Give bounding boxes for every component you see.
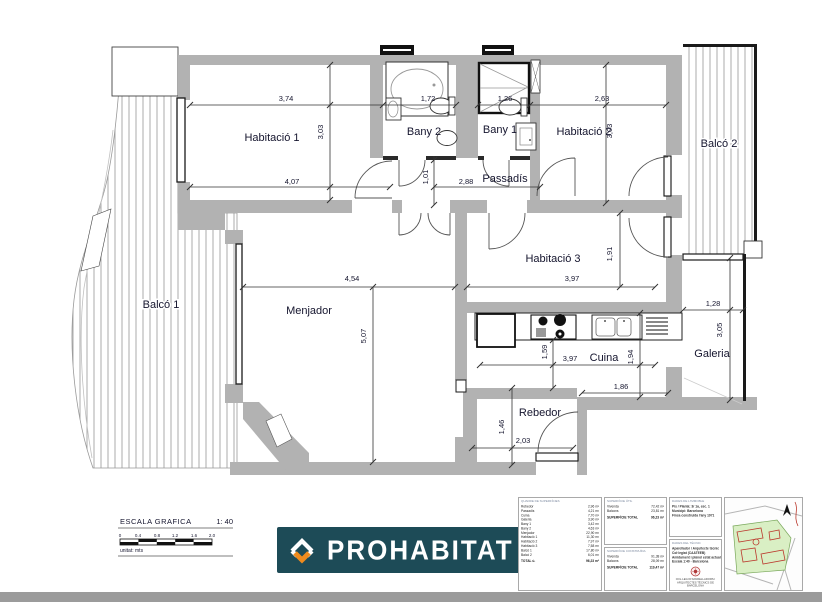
technician-data-box: DADES DEL TÈCNIC Aparellador / Arquitect… — [669, 539, 722, 591]
fridge-icon — [477, 314, 515, 347]
bottom-gray-bar — [0, 592, 822, 602]
technician-data-title: DADES DEL TÈCNIC — [672, 542, 719, 546]
svg-text:3,05: 3,05 — [715, 323, 724, 338]
walls — [178, 55, 757, 475]
property-data-title: DADES DE L'IMMOBLE — [672, 500, 719, 504]
scale-block: ESCALA GRAFICA 1: 40 0 0.4 0.8 1.2 1.6 2… — [118, 517, 233, 556]
areas-title: QUADRE DE SUPERFÍCIES — [521, 500, 599, 504]
list-item: Escala 1:40 · Barcelona — [672, 560, 719, 564]
svg-text:2,03: 2,03 — [516, 436, 531, 445]
technician-data-lines: Aparellador / Arquitecte tècnicCol·legia… — [672, 547, 719, 565]
scale-title: ESCALA GRAFICA — [120, 517, 192, 526]
floorplan-page: 3,74 4,07 3,03 1,72 1,26 2,63 3,03 1,01 … — [0, 0, 822, 602]
svg-text:3,74: 3,74 — [279, 94, 294, 103]
scale-unit: unitat: mts — [120, 548, 144, 554]
built-area-box: SUPERFÍCIE CONSTRUÏDA Vivenda91,38 m²Bal… — [604, 547, 667, 591]
svg-text:1.2: 1.2 — [172, 533, 179, 538]
room-label-bany-1: Bany 1 — [483, 124, 517, 136]
balcony-1-area — [72, 47, 237, 468]
svg-text:4,54: 4,54 — [345, 274, 360, 283]
svg-text:1,26: 1,26 — [498, 94, 513, 103]
list-item: Finca construïda l'any 1971 — [672, 514, 719, 518]
areas-total-row: TOTAL ú.96,23 m² — [521, 560, 599, 564]
svg-text:2,63: 2,63 — [595, 94, 610, 103]
scale-tick-labels: 0 0.4 0.8 1.2 1.6 2.0 — [119, 533, 216, 538]
room-label-rebedor: Rebedor — [519, 407, 562, 419]
parcel-polygon — [733, 520, 791, 574]
useful-area-title: SUPERFÍCIE ÚTIL — [607, 500, 664, 504]
table-row: Balcons23,81 m² — [607, 509, 664, 513]
svg-text:1,01: 1,01 — [421, 170, 430, 185]
table-row: Balcons28,09 m² — [607, 559, 664, 563]
useful-area-rows: Vivenda72,42 m²Balcons23,81 m² — [607, 505, 664, 514]
room-label-cuina: Cuina — [590, 352, 620, 364]
areas-rows: Rebedor2,96 m²Passadís4,21 m²Cuina7,70 m… — [521, 505, 599, 558]
college-stamp-icon — [690, 566, 701, 577]
property-data-box: DADES DE L'IMMOBLE Pis / Planta: 3r 1a, … — [669, 497, 722, 537]
svg-text:4,07: 4,07 — [285, 177, 300, 186]
svg-text:1,46: 1,46 — [497, 420, 506, 435]
stamp-caption: COL·LEGI D'APARELLADORS I ARQUITECTES TÈ… — [672, 578, 719, 588]
svg-text:2.0: 2.0 — [209, 533, 216, 538]
room-label-menjador: Menjador — [286, 305, 332, 317]
site-plan-map — [724, 497, 803, 591]
svg-text:1,91: 1,91 — [605, 247, 614, 262]
svg-text:1,86: 1,86 — [614, 382, 629, 391]
room-label-habitacio-1: Habitació 1 — [244, 132, 299, 144]
svg-text:0: 0 — [119, 533, 122, 538]
kitchen-counter — [475, 313, 682, 347]
svg-text:1,59: 1,59 — [540, 345, 549, 360]
room-label-galeria: Galeria — [694, 348, 730, 360]
svg-text:3,97: 3,97 — [565, 274, 580, 283]
table-row: Balcó 26,01 m² — [521, 553, 599, 557]
title-block-panel: QUADRE DE SUPERFÍCIES Rebedor2,96 m²Pass… — [518, 497, 803, 591]
areas-table-box: QUADRE DE SUPERFÍCIES Rebedor2,96 m²Pass… — [518, 497, 602, 591]
svg-text:0.4: 0.4 — [135, 533, 142, 538]
room-label-balco-2: Balcó 2 — [701, 138, 738, 150]
svg-text:3,03: 3,03 — [316, 125, 325, 140]
svg-text:1.6: 1.6 — [191, 533, 198, 538]
balcony-2-area — [683, 44, 762, 258]
room-label-balco-1: Balcó 1 — [143, 299, 180, 311]
useful-area-total: SUPERFÍCIE TOTAL96,23 m² — [607, 516, 664, 520]
scale-ratio: 1: 40 — [216, 517, 233, 526]
built-area-total: SUPERFÍCIE TOTAL119,47 m² — [607, 566, 664, 570]
room-label-habitacio-3: Habitació 3 — [525, 253, 580, 265]
site-map-drawing — [725, 498, 802, 590]
stove-icon — [531, 314, 576, 339]
room-label-passadis: Passadís — [482, 173, 528, 185]
prohabitat-logo-icon — [286, 534, 318, 566]
svg-text:0.8: 0.8 — [154, 533, 161, 538]
prohabitat-banner: PROHABITAT — [277, 527, 521, 573]
scale-bar — [120, 539, 212, 545]
built-area-rows: Vivenda91,38 m²Balcons28,09 m² — [607, 555, 664, 564]
svg-text:1,72: 1,72 — [421, 94, 436, 103]
svg-text:1,94: 1,94 — [626, 350, 635, 365]
svg-text:3,97: 3,97 — [563, 354, 578, 363]
brand-name: PROHABITAT — [327, 534, 514, 567]
svg-text:1,28: 1,28 — [706, 299, 721, 308]
svg-text:2,88: 2,88 — [459, 177, 474, 186]
property-data-lines: Pis / Planta: 3r 1a, esc. 1Municipi: Bar… — [672, 505, 719, 518]
useful-area-box: SUPERFÍCIE ÚTIL Vivenda72,42 m²Balcons23… — [604, 497, 667, 545]
built-area-title: SUPERFÍCIE CONSTRUÏDA — [607, 550, 664, 554]
room-label-habitacio-2: Habitació 2 — [556, 126, 611, 138]
svg-text:5,07: 5,07 — [359, 329, 368, 344]
room-label-bany-2: Bany 2 — [407, 126, 441, 138]
